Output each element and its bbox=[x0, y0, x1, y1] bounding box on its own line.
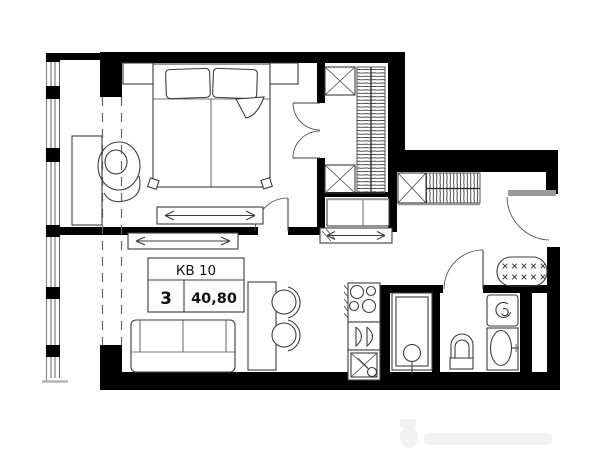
tv-console-bedroom bbox=[157, 207, 263, 224]
closet-double-door bbox=[293, 103, 320, 158]
unit-area: 40,80 bbox=[191, 291, 237, 307]
kitchen-dish-unit bbox=[348, 322, 380, 350]
pillow bbox=[165, 68, 210, 99]
armchair bbox=[98, 142, 140, 202]
bathroom-door bbox=[444, 250, 483, 289]
facade-windows bbox=[42, 55, 68, 382]
entrance-door bbox=[507, 190, 556, 240]
bedroom-closet bbox=[325, 67, 385, 193]
toilet bbox=[450, 334, 473, 369]
desk bbox=[72, 136, 102, 225]
pillow bbox=[213, 68, 258, 99]
floor-plan-image: КВ 10 3 40,80 bbox=[0, 0, 608, 451]
kitchen-sink bbox=[348, 350, 380, 380]
nightstand-left bbox=[123, 63, 153, 84]
shower bbox=[392, 293, 432, 374]
vestibule-cabinet bbox=[327, 199, 389, 226]
sofa bbox=[131, 320, 235, 372]
kitchen-stove bbox=[344, 283, 380, 322]
tv-console-living bbox=[128, 233, 238, 249]
bed bbox=[148, 64, 273, 189]
doors bbox=[255, 103, 556, 289]
dining-table bbox=[248, 282, 276, 370]
dashed-zone-lines bbox=[103, 97, 122, 345]
unit-rooms: 3 bbox=[160, 289, 172, 309]
console-vestibule bbox=[320, 228, 392, 243]
watermark bbox=[400, 419, 552, 448]
hall-wardrobe bbox=[398, 173, 480, 205]
bathroom-sink bbox=[487, 328, 519, 370]
unit-info-table: КВ 10 3 40,80 bbox=[148, 258, 244, 312]
doormat bbox=[497, 257, 547, 286]
washing-machine bbox=[487, 295, 518, 326]
unit-label: КВ 10 bbox=[176, 263, 216, 279]
nightstand-right bbox=[270, 63, 298, 84]
